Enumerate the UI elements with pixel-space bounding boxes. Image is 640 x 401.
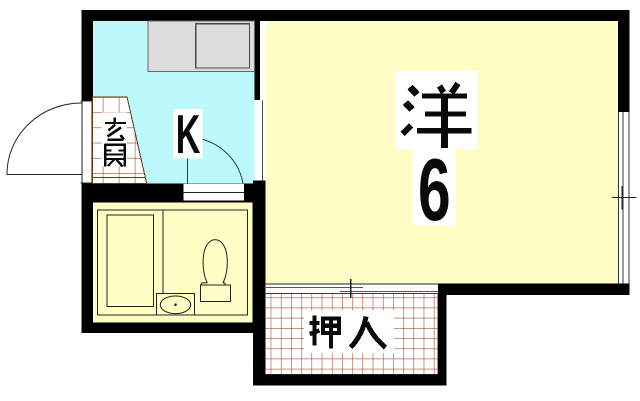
svg-text:K: K	[176, 104, 201, 165]
svg-text:6: 6	[418, 140, 451, 239]
